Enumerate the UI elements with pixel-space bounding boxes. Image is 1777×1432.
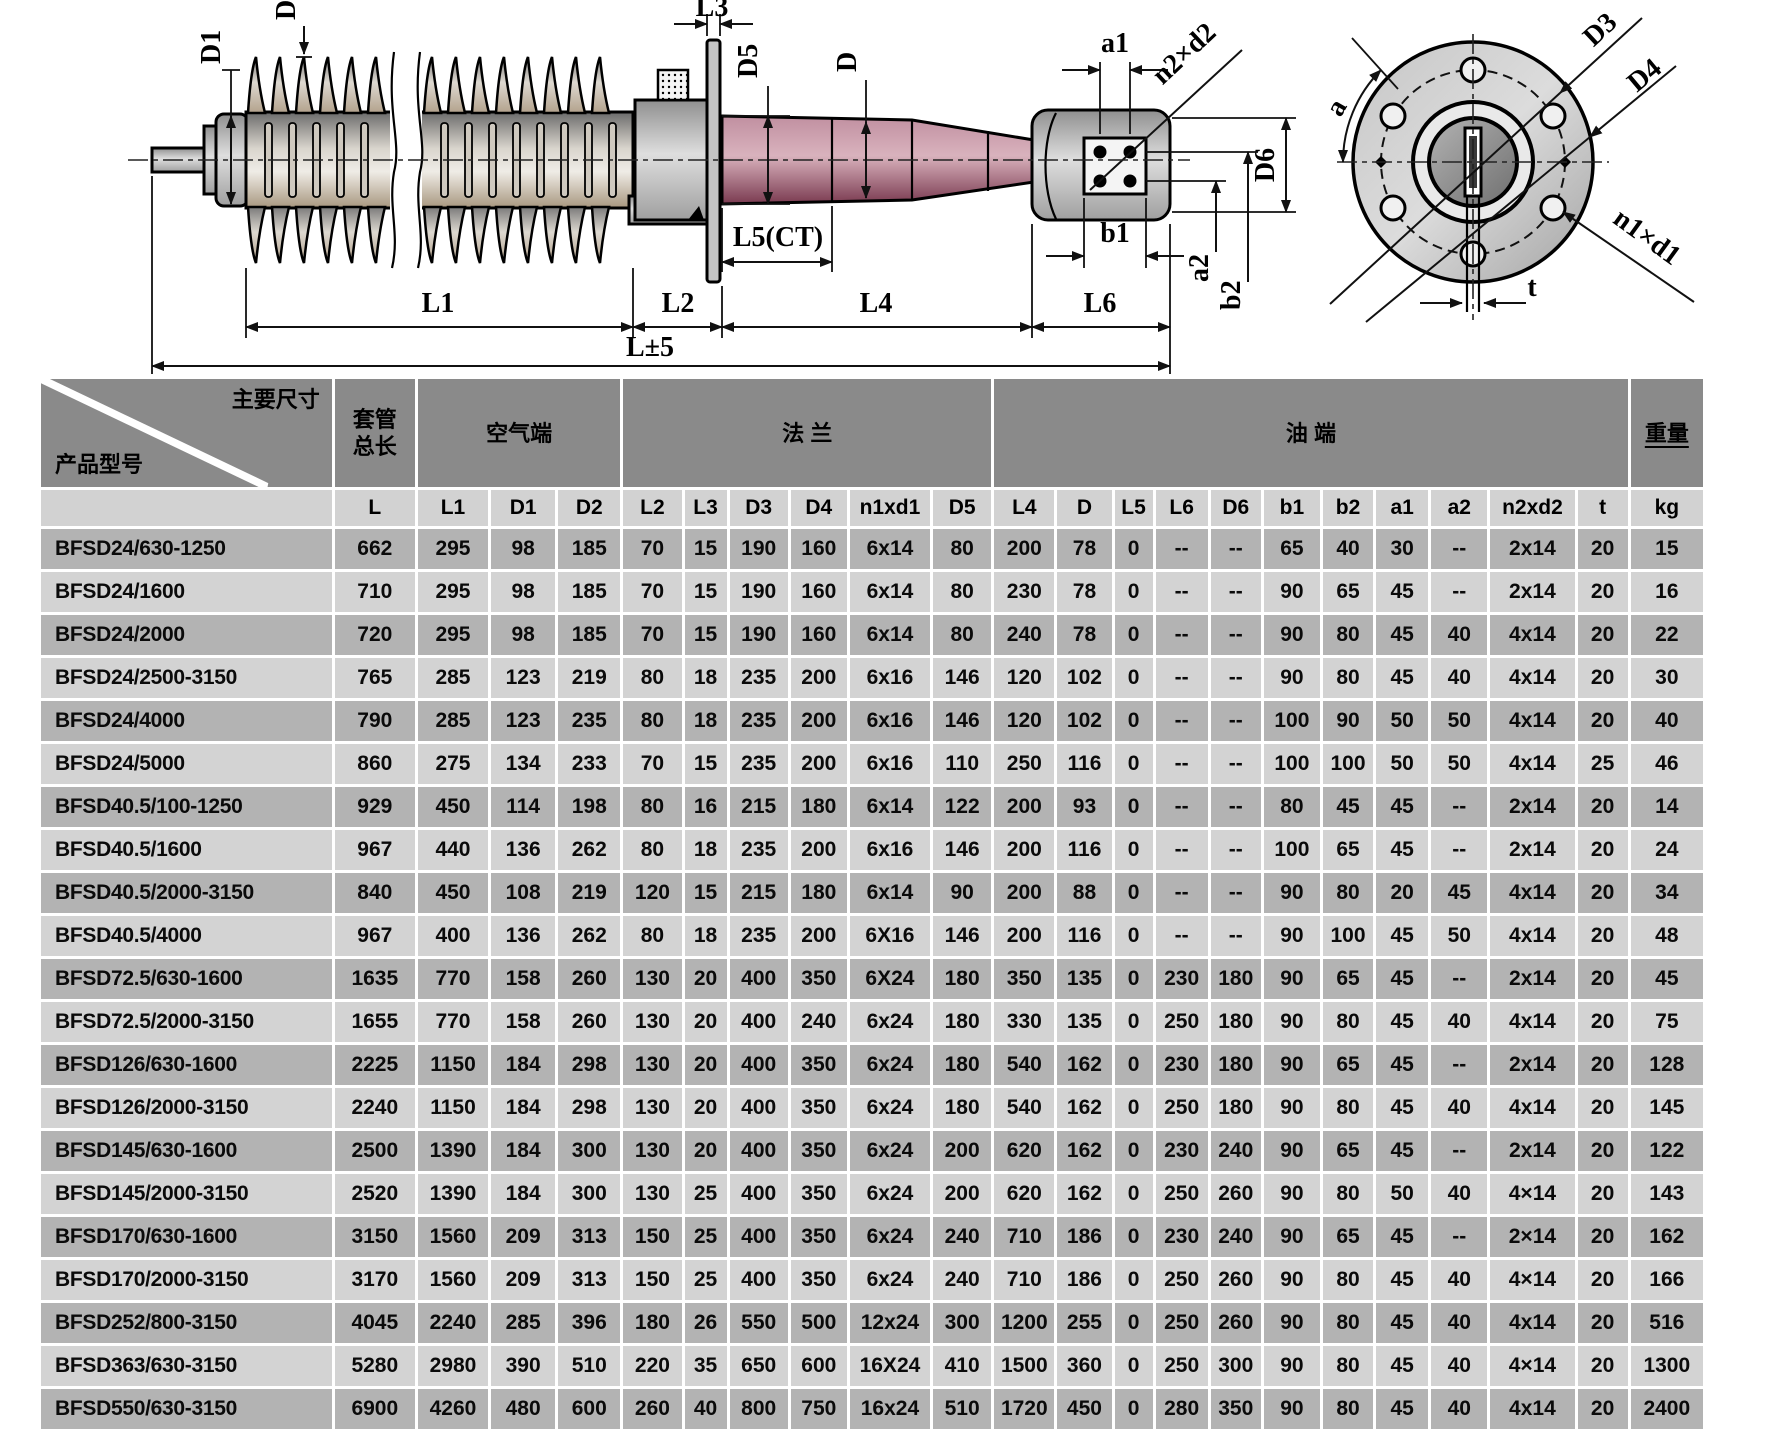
value-cell: -- — [1156, 830, 1208, 870]
value-cell: 280 — [1156, 1389, 1208, 1429]
value-cell: 40 — [1323, 529, 1373, 569]
value-cell: 500 — [791, 1303, 847, 1343]
value-cell: 313 — [558, 1217, 620, 1257]
value-cell: 40 — [1431, 1346, 1487, 1386]
value-cell: 6X24 — [850, 959, 930, 999]
value-cell: 130 — [623, 1088, 681, 1128]
value-cell: 295 — [418, 529, 488, 569]
table-row: BFSD40.5/400096740013626280182352006X161… — [41, 916, 1703, 956]
value-cell: 240 — [1211, 1131, 1261, 1171]
value-cell: 45 — [1376, 572, 1428, 612]
model-cell: BFSD24/1600 — [41, 572, 332, 612]
bushing-side-view — [128, 40, 1242, 282]
value-cell: 65 — [1323, 1131, 1373, 1171]
value-cell: 100 — [1264, 744, 1320, 784]
table-row: BFSD24/400079028512323580182352006x16146… — [41, 701, 1703, 741]
value-cell: 230 — [1156, 1217, 1208, 1257]
value-cell: 18 — [685, 658, 727, 698]
value-cell: 90 — [1264, 572, 1320, 612]
dim-label-d4: D4 — [1621, 53, 1667, 99]
value-cell: 400 — [730, 959, 788, 999]
table-row: BFSD24/630-12506622959818570151901606x14… — [41, 529, 1703, 569]
value-cell: 12x24 — [850, 1303, 930, 1343]
value-cell: 40 — [1431, 1088, 1487, 1128]
value-cell: 516 — [1631, 1303, 1703, 1343]
value-cell: 2240 — [418, 1303, 488, 1343]
value-cell: 4x14 — [1490, 1088, 1574, 1128]
value-cell: 840 — [335, 873, 415, 913]
value-cell: 765 — [335, 658, 415, 698]
value-cell: 2520 — [335, 1174, 415, 1214]
value-cell: 180 — [1211, 959, 1261, 999]
value-cell: 350 — [791, 959, 847, 999]
value-cell: 98 — [491, 615, 555, 655]
value-cell: 100 — [1264, 701, 1320, 741]
value-cell: 45 — [1376, 1088, 1428, 1128]
value-cell: 20 — [1578, 830, 1628, 870]
value-cell: 90 — [1264, 1002, 1320, 1042]
value-cell: 130 — [623, 1002, 681, 1042]
value-cell: 250 — [1156, 1002, 1208, 1042]
value-cell: 48 — [1631, 916, 1703, 956]
value-cell: 50 — [1431, 744, 1487, 784]
value-cell: 2x14 — [1490, 1131, 1574, 1171]
model-cell: BFSD24/5000 — [41, 744, 332, 784]
value-cell: 400 — [730, 1131, 788, 1171]
column-header: t — [1578, 490, 1628, 526]
table-row: BFSD72.5/2000-31501655770158260130204002… — [41, 1002, 1703, 1042]
value-cell: 16 — [1631, 572, 1703, 612]
value-cell: -- — [1211, 744, 1261, 784]
value-cell: 25 — [1578, 744, 1628, 784]
dim-label-d2: D2 — [271, 0, 302, 20]
table-row: BFSD24/20007202959818570151901606x148024… — [41, 615, 1703, 655]
value-cell: 166 — [1631, 1260, 1703, 1300]
value-cell: 6x24 — [850, 1002, 930, 1042]
value-cell: 190 — [730, 529, 788, 569]
corner-header: 主要尺寸 产品型号 — [41, 379, 332, 487]
value-cell: 100 — [1323, 916, 1373, 956]
value-cell: 98 — [491, 529, 555, 569]
spec-table: 主要尺寸 产品型号 套管 总长 空气端 法 兰 油 端 重量 L L1 D1 D… — [38, 376, 1706, 1432]
value-cell: 4x14 — [1490, 658, 1574, 698]
model-cell: BFSD40.5/1600 — [41, 830, 332, 870]
value-cell: 160 — [791, 572, 847, 612]
value-cell: 0 — [1115, 873, 1153, 913]
value-cell: 16X24 — [850, 1346, 930, 1386]
value-cell: 250 — [1156, 1346, 1208, 1386]
value-cell: 200 — [994, 830, 1054, 870]
value-cell: 4×14 — [1490, 1260, 1574, 1300]
value-cell: 186 — [1057, 1260, 1111, 1300]
column-header-row: L L1 D1 D2 L2 L3 D3 D4 n1xd1 D5 L4 D L5 … — [41, 490, 1703, 526]
value-cell: 90 — [1264, 1303, 1320, 1343]
value-cell: 2225 — [335, 1045, 415, 1085]
value-cell: 240 — [791, 1002, 847, 1042]
value-cell: 26 — [685, 1303, 727, 1343]
value-cell: 20 — [1578, 959, 1628, 999]
value-cell: 400 — [730, 1174, 788, 1214]
value-cell: 400 — [730, 1002, 788, 1042]
value-cell: 0 — [1115, 1303, 1153, 1343]
value-cell: 116 — [1057, 830, 1111, 870]
value-cell: 235 — [730, 830, 788, 870]
value-cell: 190 — [730, 615, 788, 655]
value-cell: 78 — [1057, 529, 1111, 569]
value-cell: 80 — [933, 615, 991, 655]
value-cell: 2980 — [418, 1346, 488, 1386]
value-cell: -- — [1211, 529, 1261, 569]
value-cell: 240 — [994, 615, 1054, 655]
value-cell: 230 — [1156, 1131, 1208, 1171]
value-cell: 136 — [491, 830, 555, 870]
value-cell: 180 — [1211, 1088, 1261, 1128]
value-cell: 20 — [1578, 916, 1628, 956]
value-cell: 46 — [1631, 744, 1703, 784]
value-cell: 480 — [491, 1389, 555, 1429]
value-cell: 6900 — [335, 1389, 415, 1429]
value-cell: 510 — [558, 1346, 620, 1386]
value-cell: 1200 — [994, 1303, 1054, 1343]
value-cell: 146 — [933, 830, 991, 870]
value-cell: 135 — [1057, 1002, 1111, 1042]
value-cell: 130 — [623, 1131, 681, 1171]
value-cell: 70 — [623, 529, 681, 569]
value-cell: 20 — [1578, 787, 1628, 827]
column-header: L — [335, 490, 415, 526]
value-cell: 50 — [1376, 1174, 1428, 1214]
value-cell: 650 — [730, 1346, 788, 1386]
value-cell: 80 — [623, 787, 681, 827]
model-cell: BFSD24/2500-3150 — [41, 658, 332, 698]
value-cell: 400 — [730, 1088, 788, 1128]
value-cell: 235 — [730, 701, 788, 741]
value-cell: 0 — [1115, 1389, 1153, 1429]
value-cell: 260 — [1211, 1303, 1261, 1343]
value-cell: 150 — [623, 1217, 681, 1257]
value-cell: 90 — [1264, 873, 1320, 913]
value-cell: -- — [1156, 529, 1208, 569]
value-cell: 6x14 — [850, 787, 930, 827]
table-row: BFSD24/500086027513423370152352006x16110… — [41, 744, 1703, 784]
value-cell: 75 — [1631, 1002, 1703, 1042]
value-cell: 180 — [933, 959, 991, 999]
value-cell: 50 — [1376, 744, 1428, 784]
value-cell: 40 — [1431, 1260, 1487, 1300]
value-cell: 185 — [558, 615, 620, 655]
value-cell: -- — [1211, 701, 1261, 741]
value-cell: 6x14 — [850, 529, 930, 569]
value-cell: 90 — [1264, 1389, 1320, 1429]
value-cell: 235 — [730, 744, 788, 784]
table-row: BFSD126/2000-315022401150184298130204003… — [41, 1088, 1703, 1128]
value-cell: 1560 — [418, 1260, 488, 1300]
value-cell: 0 — [1115, 1088, 1153, 1128]
value-cell: 116 — [1057, 744, 1111, 784]
value-cell: 40 — [1631, 701, 1703, 741]
value-cell: 6x24 — [850, 1088, 930, 1128]
column-header: b2 — [1323, 490, 1373, 526]
value-cell: 300 — [558, 1174, 620, 1214]
value-cell: 230 — [994, 572, 1054, 612]
value-cell: 180 — [933, 1045, 991, 1085]
value-cell: 400 — [730, 1217, 788, 1257]
value-cell: 45 — [1376, 830, 1428, 870]
value-cell: 330 — [994, 1002, 1054, 1042]
value-cell: 4x14 — [1490, 1002, 1574, 1042]
value-cell: 209 — [491, 1217, 555, 1257]
value-cell: 2x14 — [1490, 959, 1574, 999]
value-cell: 20 — [1578, 1002, 1628, 1042]
value-cell: 1655 — [335, 1002, 415, 1042]
value-cell: 6x24 — [850, 1217, 930, 1257]
dim-label-a1: a1 — [1101, 28, 1129, 59]
value-cell: 662 — [335, 529, 415, 569]
value-cell: -- — [1156, 658, 1208, 698]
model-cell: BFSD145/2000-3150 — [41, 1174, 332, 1214]
value-cell: 40 — [1431, 658, 1487, 698]
value-cell: 1720 — [994, 1389, 1054, 1429]
value-cell: 350 — [791, 1088, 847, 1128]
column-header: L4 — [994, 490, 1054, 526]
value-cell: 2400 — [1631, 1389, 1703, 1429]
column-header-blank — [41, 490, 332, 526]
value-cell: 929 — [335, 787, 415, 827]
value-cell: 450 — [1057, 1389, 1111, 1429]
value-cell: 20 — [1578, 529, 1628, 569]
model-cell: BFSD24/2000 — [41, 615, 332, 655]
value-cell: -- — [1431, 1217, 1487, 1257]
column-header: D1 — [491, 490, 555, 526]
value-cell: -- — [1211, 916, 1261, 956]
value-cell: 45 — [1376, 959, 1428, 999]
value-cell: 0 — [1115, 916, 1153, 956]
value-cell: 360 — [1057, 1346, 1111, 1386]
value-cell: 6x14 — [850, 873, 930, 913]
flange-plate — [707, 40, 720, 282]
value-cell: 20 — [1578, 658, 1628, 698]
group-oil-end: 油 端 — [994, 379, 1627, 487]
value-cell: 90 — [1264, 615, 1320, 655]
value-cell: 20 — [1578, 1346, 1628, 1386]
value-cell: 80 — [1323, 615, 1373, 655]
value-cell: -- — [1211, 615, 1261, 655]
table-row: BFSD40.5/160096744013626280182352006x161… — [41, 830, 1703, 870]
value-cell: 390 — [491, 1346, 555, 1386]
table-row: BFSD550/630-3150690042604806002604080075… — [41, 1389, 1703, 1429]
value-cell: 209 — [491, 1260, 555, 1300]
value-cell: 180 — [791, 873, 847, 913]
value-cell: -- — [1211, 572, 1261, 612]
value-cell: 162 — [1057, 1131, 1111, 1171]
value-cell: 45 — [1376, 1303, 1428, 1343]
model-cell: BFSD24/4000 — [41, 701, 332, 741]
value-cell: 136 — [491, 916, 555, 956]
value-cell: 90 — [1264, 1260, 1320, 1300]
value-cell: 185 — [558, 572, 620, 612]
value-cell: 130 — [623, 1174, 681, 1214]
value-cell: 0 — [1115, 529, 1153, 569]
value-cell: 198 — [558, 787, 620, 827]
value-cell: 540 — [994, 1045, 1054, 1085]
value-cell: 250 — [1156, 1260, 1208, 1300]
column-header: L6 — [1156, 490, 1208, 526]
corner-label-model: 产品型号 — [55, 451, 143, 478]
value-cell: 162 — [1631, 1217, 1703, 1257]
value-cell: 350 — [791, 1260, 847, 1300]
value-cell: 70 — [623, 572, 681, 612]
value-cell: 620 — [994, 1174, 1054, 1214]
dim-label-l2: L2 — [662, 288, 695, 319]
value-cell: 20 — [685, 1002, 727, 1042]
value-cell: 15 — [685, 572, 727, 612]
value-cell: 710 — [335, 572, 415, 612]
value-cell: 600 — [558, 1389, 620, 1429]
value-cell: 396 — [558, 1303, 620, 1343]
model-cell: BFSD170/2000-3150 — [41, 1260, 332, 1300]
value-cell: 3170 — [335, 1260, 415, 1300]
value-cell: 6x16 — [850, 701, 930, 741]
value-cell: 22 — [1631, 615, 1703, 655]
value-cell: 34 — [1631, 873, 1703, 913]
model-cell: BFSD24/630-1250 — [41, 529, 332, 569]
value-cell: 6x24 — [850, 1174, 930, 1214]
model-cell: BFSD40.5/2000-3150 — [41, 873, 332, 913]
value-cell: -- — [1431, 787, 1487, 827]
table-row: BFSD145/630-1600250013901843001302040035… — [41, 1131, 1703, 1171]
table-row: BFSD145/2000-315025201390184300130254003… — [41, 1174, 1703, 1214]
value-cell: 45 — [1376, 658, 1428, 698]
value-cell: 135 — [1057, 959, 1111, 999]
value-cell: 295 — [418, 615, 488, 655]
value-cell: 750 — [791, 1389, 847, 1429]
column-header: L2 — [623, 490, 681, 526]
group-weight: 重量 — [1631, 379, 1703, 487]
value-cell: 158 — [491, 1002, 555, 1042]
value-cell: 0 — [1115, 1217, 1153, 1257]
value-cell: 45 — [1376, 1389, 1428, 1429]
value-cell: 4045 — [335, 1303, 415, 1343]
value-cell: 45 — [1631, 959, 1703, 999]
value-cell: 80 — [1323, 1174, 1373, 1214]
value-cell: 123 — [491, 658, 555, 698]
value-cell: 4x14 — [1490, 873, 1574, 913]
value-cell: 20 — [685, 1088, 727, 1128]
value-cell: 200 — [994, 529, 1054, 569]
value-cell: 0 — [1115, 701, 1153, 741]
model-cell: BFSD72.5/630-1600 — [41, 959, 332, 999]
value-cell: 300 — [558, 1131, 620, 1171]
value-cell: 4x14 — [1490, 916, 1574, 956]
value-cell: 65 — [1323, 572, 1373, 612]
dim-label-a2: a2 — [1184, 254, 1215, 282]
value-cell: 45 — [1376, 787, 1428, 827]
value-cell: 410 — [933, 1346, 991, 1386]
value-cell: 0 — [1115, 787, 1153, 827]
value-cell: 90 — [1264, 1217, 1320, 1257]
value-cell: 18 — [685, 701, 727, 741]
value-cell: 20 — [1578, 1303, 1628, 1343]
dim-label-d: D — [832, 52, 863, 72]
value-cell: 300 — [1211, 1346, 1261, 1386]
value-cell: 24 — [1631, 830, 1703, 870]
value-cell: 298 — [558, 1088, 620, 1128]
value-cell: 93 — [1057, 787, 1111, 827]
value-cell: 30 — [1631, 658, 1703, 698]
value-cell: 285 — [491, 1303, 555, 1343]
value-cell: 88 — [1057, 873, 1111, 913]
value-cell: 100 — [1323, 744, 1373, 784]
table-row: BFSD170/2000-315031701560209313150254003… — [41, 1260, 1703, 1300]
value-cell: 0 — [1115, 1260, 1153, 1300]
model-cell: BFSD40.5/100-1250 — [41, 787, 332, 827]
value-cell: 50 — [1376, 701, 1428, 741]
value-cell: 80 — [1323, 1346, 1373, 1386]
value-cell: 16 — [685, 787, 727, 827]
value-cell: 860 — [335, 744, 415, 784]
value-cell: 275 — [418, 744, 488, 784]
value-cell: 150 — [623, 1260, 681, 1300]
value-cell: -- — [1211, 873, 1261, 913]
value-cell: 146 — [933, 658, 991, 698]
value-cell: 200 — [791, 830, 847, 870]
value-cell: 600 — [791, 1346, 847, 1386]
value-cell: 230 — [1156, 959, 1208, 999]
value-cell: 250 — [1156, 1174, 1208, 1214]
value-cell: 80 — [1323, 658, 1373, 698]
value-cell: 620 — [994, 1131, 1054, 1171]
value-cell: 80 — [1323, 1002, 1373, 1042]
value-cell: 260 — [558, 959, 620, 999]
dim-label-b2: b2 — [1216, 280, 1247, 310]
value-cell: -- — [1431, 830, 1487, 870]
column-header: D5 — [933, 490, 991, 526]
value-cell: 40 — [1431, 615, 1487, 655]
value-cell: 80 — [1323, 1389, 1373, 1429]
value-cell: 219 — [558, 658, 620, 698]
value-cell: 2500 — [335, 1131, 415, 1171]
value-cell: 108 — [491, 873, 555, 913]
table-row: BFSD40.5/100-125092945011419880162151806… — [41, 787, 1703, 827]
value-cell: 240 — [1211, 1217, 1261, 1257]
value-cell: -- — [1431, 572, 1487, 612]
flange-end-view: D3 D4 a n1×d1 t — [1320, 7, 1694, 322]
value-cell: 45 — [1376, 1045, 1428, 1085]
value-cell: 90 — [1323, 701, 1373, 741]
value-cell: 180 — [791, 787, 847, 827]
value-cell: 510 — [933, 1389, 991, 1429]
value-cell: 200 — [994, 787, 1054, 827]
value-cell: 1500 — [994, 1346, 1054, 1386]
value-cell: 40 — [1431, 1303, 1487, 1343]
value-cell: 200 — [933, 1174, 991, 1214]
value-cell: 710 — [994, 1260, 1054, 1300]
value-cell: 162 — [1057, 1174, 1111, 1214]
value-cell: 200 — [791, 744, 847, 784]
value-cell: 45 — [1323, 787, 1373, 827]
value-cell: 65 — [1323, 1045, 1373, 1085]
value-cell: 2240 — [335, 1088, 415, 1128]
value-cell: -- — [1211, 787, 1261, 827]
value-cell: 102 — [1057, 701, 1111, 741]
value-cell: 25 — [685, 1217, 727, 1257]
value-cell: 90 — [1264, 959, 1320, 999]
value-cell: 18 — [685, 830, 727, 870]
table-body: BFSD24/630-12506622959818570151901606x14… — [41, 529, 1703, 1429]
column-header: a2 — [1431, 490, 1487, 526]
value-cell: -- — [1431, 1131, 1487, 1171]
value-cell: 350 — [791, 1174, 847, 1214]
